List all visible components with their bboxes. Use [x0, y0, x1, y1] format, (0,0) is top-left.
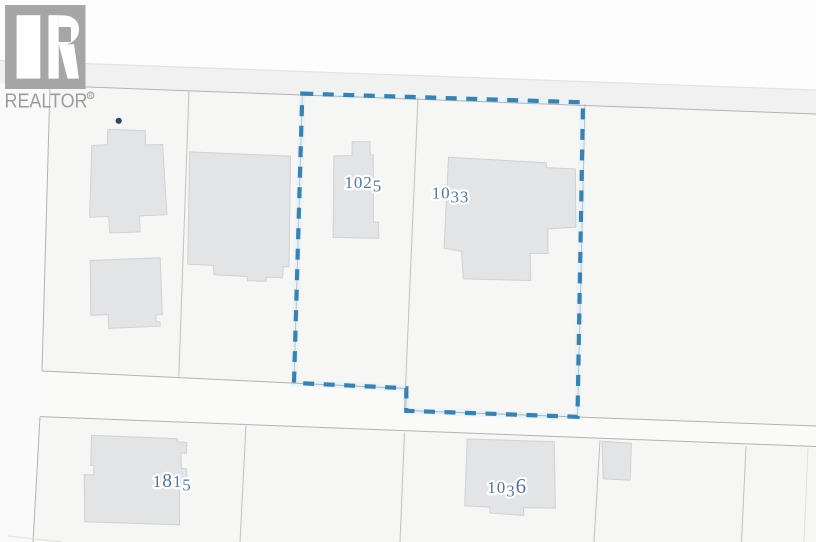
- svg-text:REALTOR: REALTOR: [5, 91, 88, 113]
- svg-text:R: R: [88, 93, 93, 100]
